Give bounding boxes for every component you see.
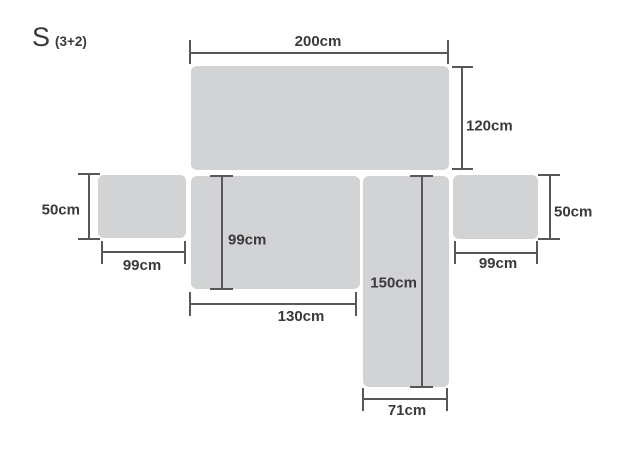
dimension-tick — [410, 175, 433, 177]
dimension-tick — [355, 292, 357, 316]
dimension-tick — [78, 173, 100, 175]
sofa-dimension-diagram: S (3+2) 200cm 120cm 50cm 99cm 99cm — [0, 0, 640, 474]
right-armrest-panel — [453, 175, 538, 239]
dimension-line — [421, 175, 423, 388]
dimension-label-right-arm-width: 99cm — [479, 256, 517, 271]
dimension-label-chaise-width: 71cm — [388, 403, 426, 418]
dimension-line — [190, 52, 449, 54]
dimension-label-top-width: 200cm — [295, 34, 342, 49]
dimension-tick — [446, 388, 448, 411]
dimension-line — [221, 175, 223, 290]
diagram-title-suffix: (3+2) — [55, 34, 87, 49]
dimension-label-seat-width: 130cm — [278, 309, 325, 324]
dimension-tick — [189, 292, 191, 316]
dimension-tick — [454, 241, 456, 264]
dimension-label-left-arm-height: 50cm — [42, 203, 80, 218]
dimension-tick — [210, 288, 233, 290]
dimension-label-left-arm-width: 99cm — [123, 258, 161, 273]
diagram-title: S — [32, 22, 51, 53]
dimension-line — [362, 398, 448, 400]
backrest-panel — [191, 66, 449, 170]
dimension-line — [101, 251, 186, 253]
dimension-tick — [538, 238, 560, 240]
dimension-line — [454, 252, 538, 254]
dimension-tick — [452, 66, 473, 68]
dimension-line — [189, 303, 357, 305]
seat-panel — [191, 176, 360, 289]
dimension-line — [461, 66, 463, 170]
dimension-line — [549, 174, 551, 240]
dimension-tick — [536, 241, 538, 264]
dimension-tick — [410, 386, 433, 388]
dimension-tick — [538, 174, 560, 176]
dimension-label-back-depth: 120cm — [466, 119, 513, 134]
dimension-tick — [189, 40, 191, 64]
dimension-tick — [101, 241, 103, 264]
left-armrest-panel — [98, 175, 186, 238]
dimension-label-right-arm-height: 50cm — [554, 205, 592, 220]
dimension-line — [88, 173, 90, 240]
dimension-label-seat-depth: 99cm — [228, 233, 266, 248]
dimension-tick — [210, 175, 233, 177]
dimension-tick — [184, 241, 186, 264]
dimension-tick — [447, 40, 449, 64]
dimension-tick — [452, 168, 473, 170]
dimension-tick — [78, 238, 100, 240]
dimension-tick — [362, 388, 364, 411]
dimension-label-chaise-length: 150cm — [370, 276, 417, 291]
